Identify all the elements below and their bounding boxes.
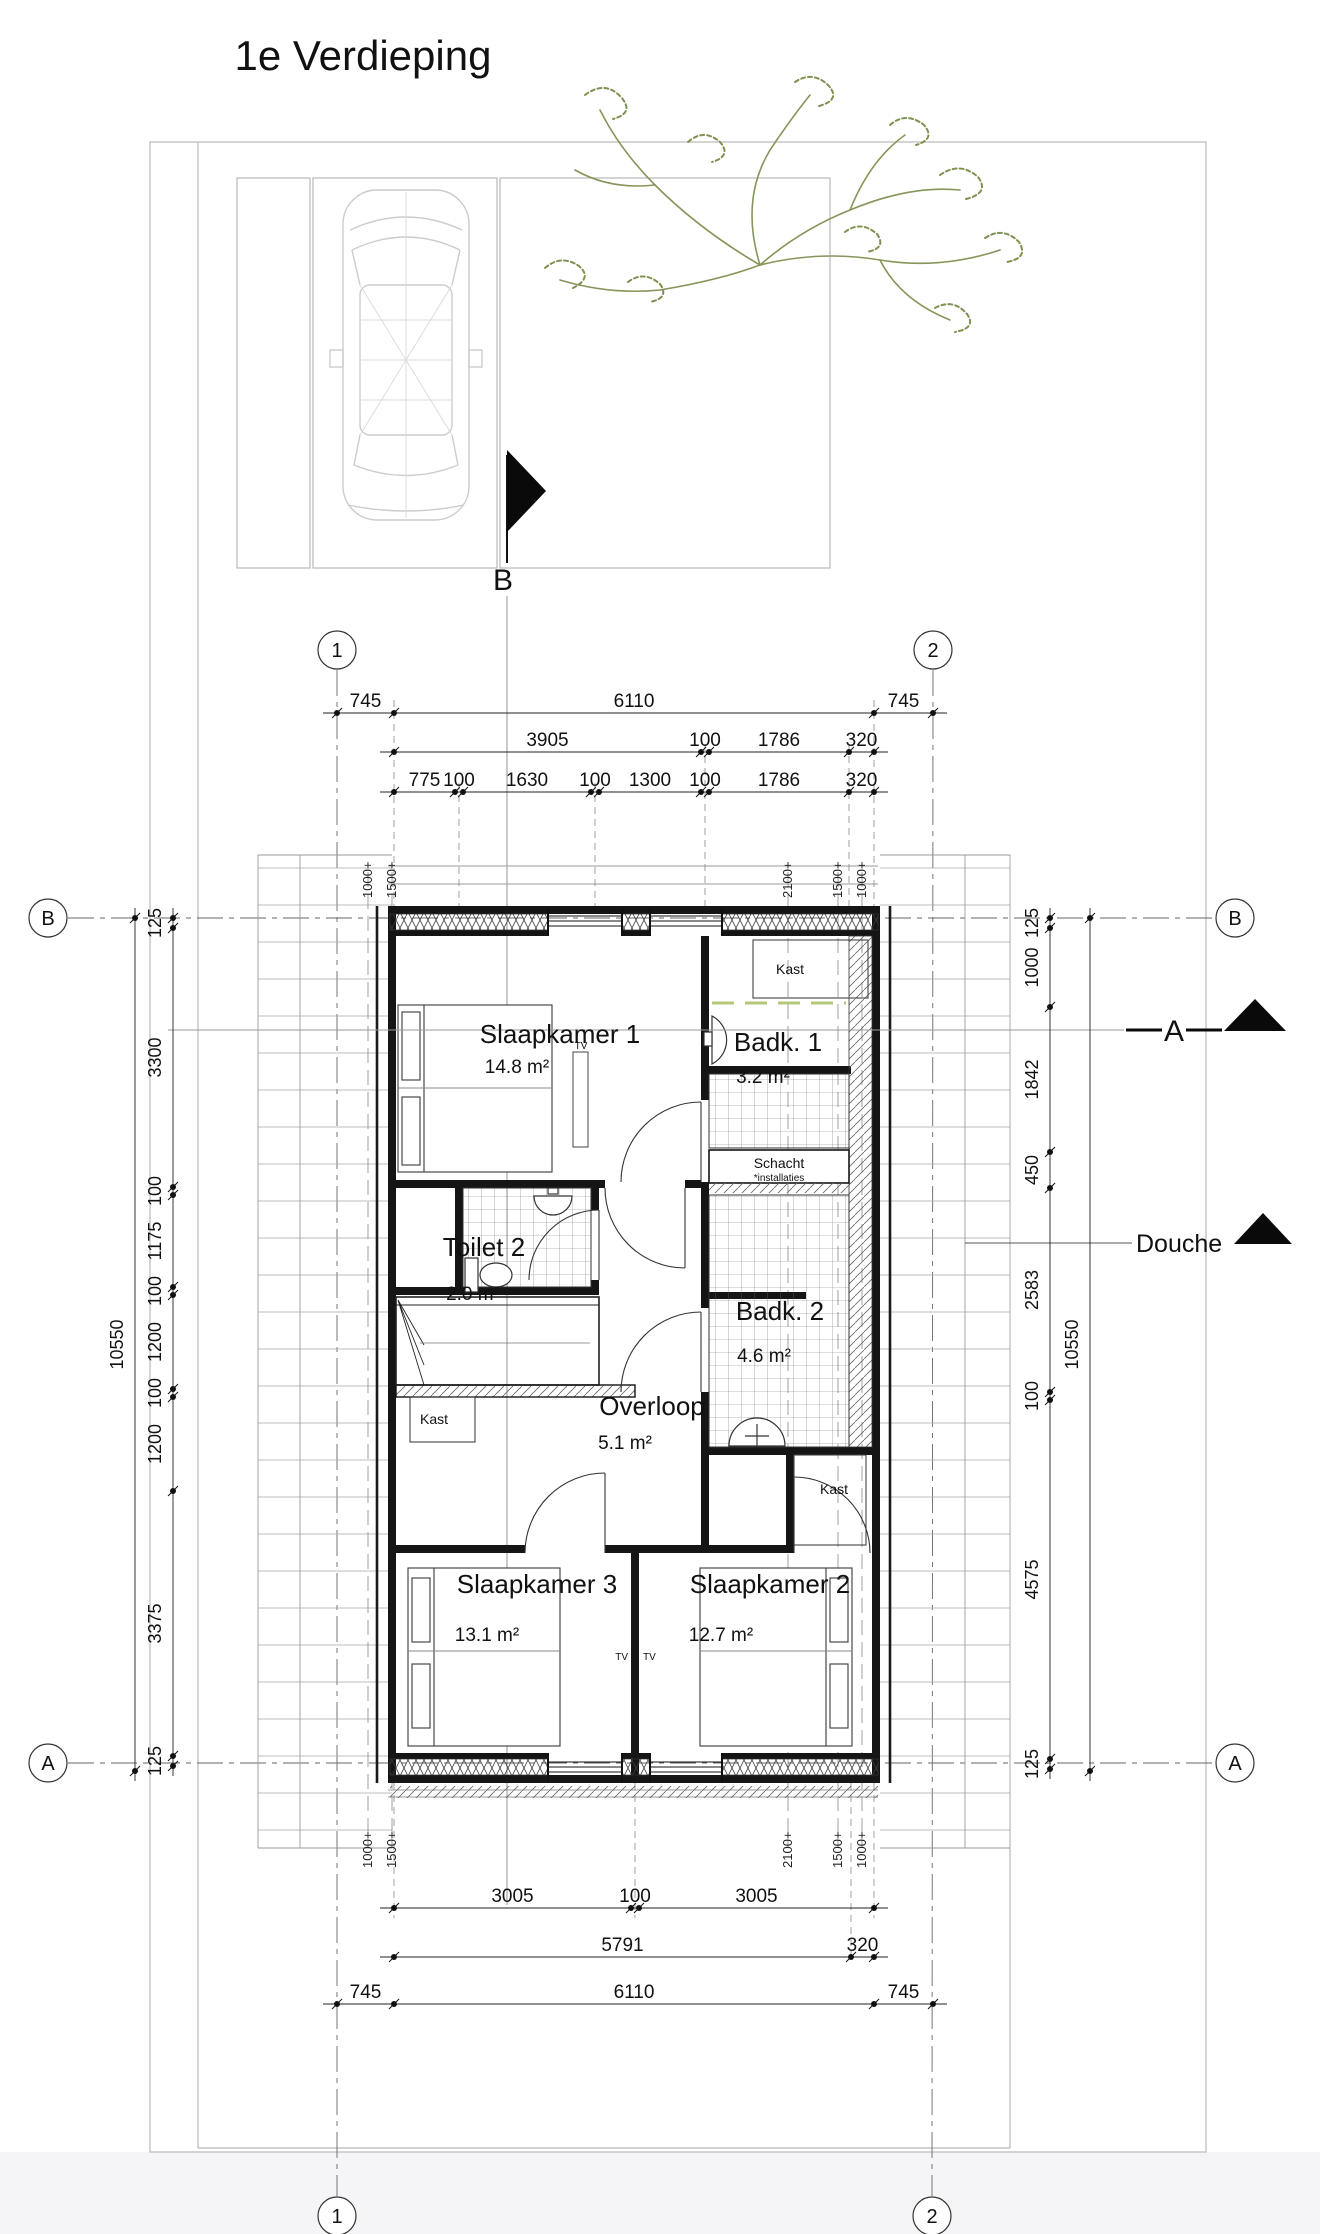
room-name-slaapkamer-3: Slaapkamer 3 (457, 1569, 617, 1599)
grid-bubble-label: 1 (331, 2206, 342, 2228)
dim-label: 125 (145, 1746, 165, 1776)
dim-label: 1200 (145, 1322, 165, 1362)
dim-label: 100 (689, 770, 721, 791)
dim-label: 2583 (1022, 1270, 1042, 1310)
dim-label: 125 (1022, 1749, 1042, 1779)
grid-bubble-label: B (1228, 908, 1241, 930)
dim-label: 100 (689, 730, 721, 751)
douche-arrow-icon (1234, 1213, 1292, 1244)
dim-label: 4575 (1022, 1559, 1042, 1599)
shaft-strip (849, 936, 872, 1447)
grid-bubble-label: 1 (331, 640, 342, 662)
dimension-chains: 7456110745390510017863207751001630100130… (107, 691, 1095, 2009)
door-slaapkamer1 (605, 1188, 685, 1268)
page-margin (0, 2152, 1320, 2234)
dim-label: 6110 (614, 1982, 655, 2003)
height-marker: 1500+ (384, 861, 399, 898)
douche-callout: Douche (965, 1213, 1292, 1258)
height-marker: 1500+ (830, 861, 845, 898)
grid-bubble-label: 2 (927, 640, 938, 662)
grid-bubble-label: A (41, 1753, 55, 1775)
dim-label: 3300 (145, 1037, 165, 1077)
parking-area (237, 178, 830, 568)
dim-label: 3005 (491, 1886, 533, 1907)
grid-bubble-label: 2 (926, 2206, 937, 2228)
dim-label: 3005 (735, 1886, 777, 1907)
dim-label: 125 (145, 908, 165, 938)
height-marker: 2100+ (780, 861, 795, 898)
room-area-slaapkamer-3: 13.1 m² (455, 1625, 519, 1646)
dim-label: 6110 (614, 691, 655, 712)
tv-label: TV (643, 1652, 656, 1663)
room-name-badkamer-2: Badk. 2 (736, 1296, 824, 1326)
eave-hatch (390, 1786, 878, 1798)
door-badkamer2 (621, 1312, 701, 1392)
room-area-badkamer-1: 3.2 m² (736, 1067, 790, 1088)
height-marker: 1000+ (360, 1831, 375, 1868)
dim-label: 1630 (506, 770, 548, 791)
dim-label: 745 (888, 691, 920, 712)
parking-stall (500, 178, 830, 568)
car-icon (330, 190, 482, 520)
height-marker: 1500+ (384, 1831, 399, 1868)
dim-label: 1300 (629, 770, 671, 791)
dim-label: 745 (888, 1982, 920, 2003)
grid-bubble-label: A (1228, 1753, 1242, 1775)
floor-plan-drawing: 1e Verdieping (0, 0, 1320, 2234)
douche-label: Douche (1136, 1230, 1222, 1258)
dim-label: 100 (579, 770, 611, 791)
dim-label: 320 (846, 770, 878, 791)
tv-label: TV (615, 1652, 628, 1663)
room-name-slaapkamer-1: Slaapkamer 1 (480, 1019, 640, 1049)
room-area-badkamer-2: 4.6 m² (737, 1346, 791, 1367)
page-title: 1e Verdieping (235, 32, 492, 79)
dim-label: 100 (443, 770, 475, 791)
dim-label: 100 (1022, 1381, 1042, 1411)
dim-label: 100 (619, 1886, 651, 1907)
section-label-a: A (1164, 1015, 1184, 1048)
height-marker: 1000+ (854, 1831, 869, 1868)
door-badkamer1 (621, 1102, 701, 1182)
dim-label: 775 (409, 770, 441, 791)
dim-label: 745 (350, 691, 382, 712)
tree-icon (545, 77, 1022, 332)
schacht-label: Schacht (754, 1155, 805, 1171)
dim-label: 1175 (145, 1222, 165, 1261)
dim-label: 320 (846, 730, 878, 751)
dim-label: 5791 (601, 1935, 643, 1956)
dim-label: 3375 (145, 1603, 165, 1643)
height-marker: 2100+ (780, 1831, 795, 1868)
dim-label: 3905 (526, 730, 568, 751)
section-arrow-icon (1224, 999, 1286, 1031)
kast-label: Kast (420, 1411, 448, 1427)
dim-label: 125 (1022, 908, 1042, 938)
tv-cabinet (573, 1052, 588, 1147)
room-area-slaapkamer-2: 12.7 m² (689, 1625, 753, 1646)
room-name-overloop: Overloop (599, 1391, 705, 1421)
dim-label: 10550 (107, 1319, 127, 1369)
door-slaapkamer3 (525, 1473, 605, 1553)
dim-label: 100 (145, 1378, 165, 1408)
height-marker: 1000+ (360, 861, 375, 898)
parking-stall (237, 178, 310, 568)
room-area-overloop: 5.1 m² (598, 1433, 652, 1454)
dim-label: 100 (145, 1176, 165, 1206)
dim-label: 745 (350, 1982, 382, 2003)
site-boundary (150, 142, 1206, 2152)
section-arrow-icon (507, 450, 546, 532)
dim-label: 1000 (1022, 947, 1042, 987)
dim-label: 1786 (758, 770, 800, 791)
staircase (396, 1297, 599, 1385)
dim-label: 450 (1022, 1155, 1042, 1185)
room-name-badkamer-1: Badk. 1 (734, 1027, 822, 1057)
dim-label: 320 (847, 1935, 879, 1956)
grid-bubble-label: B (41, 908, 54, 930)
dim-label: 1200 (145, 1424, 165, 1464)
dim-label: 1786 (758, 730, 800, 751)
room-name-slaapkamer-2: Slaapkamer 2 (690, 1569, 850, 1599)
washbasin-icon (712, 1016, 727, 1064)
page: 1e Verdieping (0, 0, 1320, 2234)
dim-label: 10550 (1062, 1319, 1082, 1369)
room-name-toilet-2: Toilet 2 (443, 1232, 525, 1262)
room-area-slaapkamer-1: 14.8 m² (485, 1057, 549, 1078)
dim-label: 1842 (1022, 1059, 1042, 1099)
height-marker: 1000+ (854, 861, 869, 898)
room-area-toilet-2: 2.0 m² (446, 1284, 500, 1305)
section-label-b: B (493, 564, 513, 597)
height-marker: 1500+ (830, 1831, 845, 1868)
kast-label: Kast (776, 961, 804, 977)
closet-right (794, 1455, 866, 1545)
kast-label: Kast (820, 1481, 848, 1497)
dim-label: 100 (145, 1276, 165, 1306)
installaties-label: *installaties (754, 1173, 805, 1184)
